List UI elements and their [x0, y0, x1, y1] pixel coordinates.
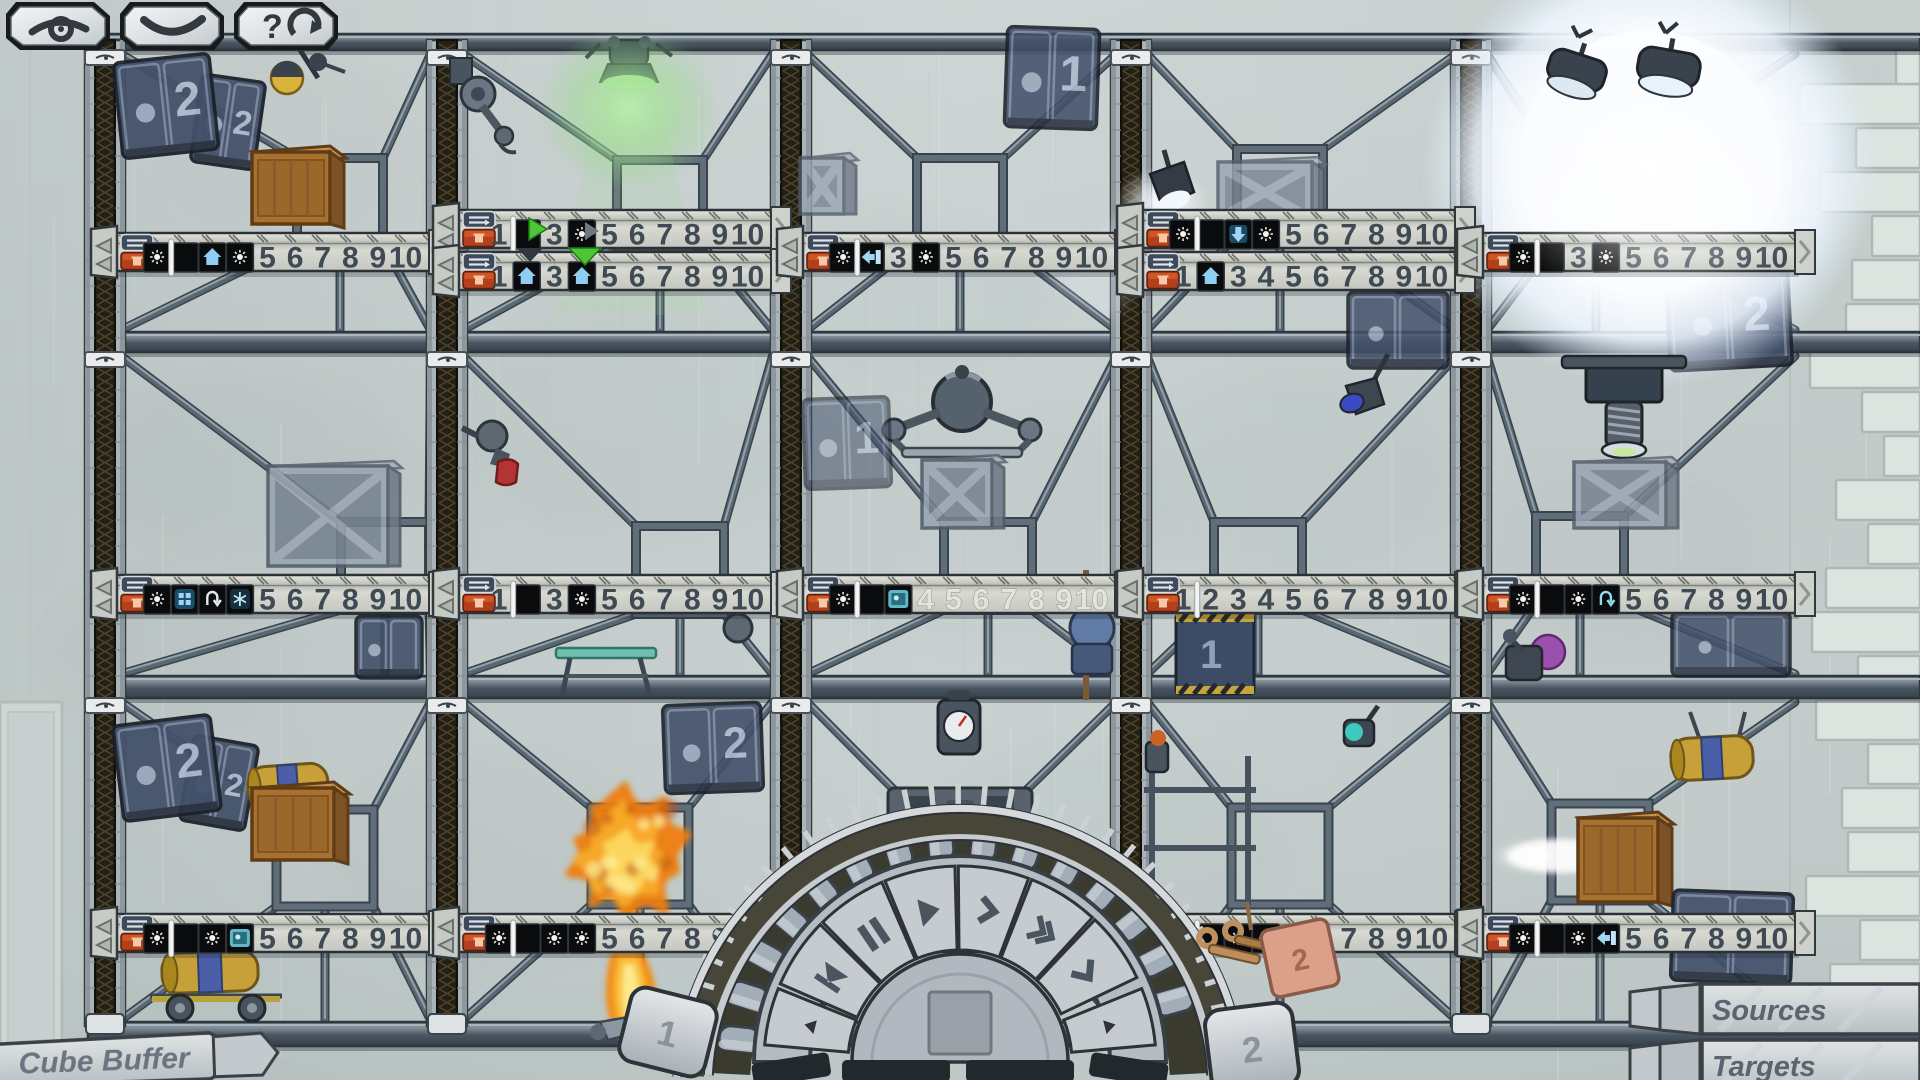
svg-text:7: 7 — [656, 261, 673, 294]
svg-text:6: 6 — [629, 923, 646, 956]
svg-text:2: 2 — [1202, 584, 1219, 617]
svg-text:4: 4 — [918, 584, 935, 617]
svg-text:?: ? — [262, 8, 283, 46]
svg-text:5: 5 — [259, 242, 276, 275]
svg-text:7: 7 — [314, 584, 331, 617]
svg-text:Cube Buffer: Cube Buffer — [18, 1042, 192, 1080]
svg-text:9: 9 — [1736, 923, 1753, 956]
svg-text:9: 9 — [370, 923, 387, 956]
svg-text:3: 3 — [890, 242, 907, 275]
svg-text:9: 9 — [1056, 584, 1073, 617]
svg-text:10: 10 — [1075, 584, 1108, 617]
svg-text:8: 8 — [1708, 923, 1725, 956]
svg-text:7: 7 — [1000, 242, 1017, 275]
svg-text:3: 3 — [1230, 261, 1247, 294]
svg-text:5: 5 — [945, 584, 962, 617]
svg-text:7: 7 — [1340, 261, 1357, 294]
svg-text:9: 9 — [1396, 584, 1413, 617]
svg-text:7: 7 — [656, 923, 673, 956]
svg-text:6: 6 — [287, 584, 304, 617]
svg-text:9: 9 — [712, 219, 729, 252]
svg-text:1: 1 — [491, 219, 508, 252]
svg-text:10: 10 — [1755, 923, 1788, 956]
svg-text:6: 6 — [1653, 923, 1670, 956]
svg-text:5: 5 — [1625, 584, 1642, 617]
svg-text:7: 7 — [1340, 584, 1357, 617]
svg-text:5: 5 — [259, 584, 276, 617]
svg-text:4: 4 — [1258, 261, 1275, 294]
svg-text:6: 6 — [629, 584, 646, 617]
svg-text:10: 10 — [389, 923, 422, 956]
svg-text:5: 5 — [945, 242, 962, 275]
svg-text:6: 6 — [629, 219, 646, 252]
svg-text:10: 10 — [1415, 584, 1448, 617]
svg-text:10: 10 — [1755, 584, 1788, 617]
svg-text:10: 10 — [1415, 923, 1448, 956]
svg-text:5: 5 — [1625, 923, 1642, 956]
svg-text:5: 5 — [259, 923, 276, 956]
svg-text:9: 9 — [1396, 923, 1413, 956]
svg-text:3: 3 — [546, 219, 563, 252]
svg-text:8: 8 — [684, 261, 701, 294]
svg-text:8: 8 — [342, 584, 359, 617]
svg-text:9: 9 — [1056, 242, 1073, 275]
svg-text:1: 1 — [1175, 584, 1192, 617]
svg-text:1: 1 — [1058, 45, 1088, 102]
svg-text:8: 8 — [684, 219, 701, 252]
svg-text:1: 1 — [491, 261, 508, 294]
svg-text:1: 1 — [491, 584, 508, 617]
svg-text:8: 8 — [1368, 584, 1385, 617]
svg-text:8: 8 — [684, 923, 701, 956]
svg-text:9: 9 — [370, 584, 387, 617]
svg-text:3: 3 — [546, 261, 563, 294]
svg-text:6: 6 — [287, 242, 304, 275]
svg-text:6: 6 — [1313, 584, 1330, 617]
svg-text:10: 10 — [1075, 242, 1108, 275]
svg-text:9: 9 — [712, 584, 729, 617]
svg-text:9: 9 — [1736, 584, 1753, 617]
svg-text:1: 1 — [853, 412, 880, 464]
svg-text:8: 8 — [1028, 584, 1045, 617]
svg-text:6: 6 — [973, 584, 990, 617]
svg-text:7: 7 — [1680, 923, 1697, 956]
svg-text:5: 5 — [601, 923, 618, 956]
svg-text:5: 5 — [1285, 584, 1302, 617]
svg-text:7: 7 — [1680, 584, 1697, 617]
svg-text:7: 7 — [656, 219, 673, 252]
svg-text:9: 9 — [1396, 219, 1413, 252]
svg-text:7: 7 — [1340, 219, 1357, 252]
svg-text:10: 10 — [1415, 219, 1448, 252]
svg-text:6: 6 — [287, 923, 304, 956]
svg-text:5: 5 — [1285, 261, 1302, 294]
svg-text:8: 8 — [1028, 242, 1045, 275]
svg-text:8: 8 — [342, 923, 359, 956]
svg-text:9: 9 — [712, 261, 729, 294]
svg-text:6: 6 — [1313, 219, 1330, 252]
svg-text:8: 8 — [1708, 584, 1725, 617]
svg-text:10: 10 — [1415, 261, 1448, 294]
svg-text:4: 4 — [1258, 584, 1275, 617]
svg-text:6: 6 — [629, 261, 646, 294]
svg-text:10: 10 — [731, 261, 764, 294]
svg-text:7: 7 — [314, 923, 331, 956]
svg-text:8: 8 — [1368, 219, 1385, 252]
svg-text:7: 7 — [314, 242, 331, 275]
svg-text:8: 8 — [684, 584, 701, 617]
svg-text:7: 7 — [1000, 584, 1017, 617]
svg-text:6: 6 — [1653, 584, 1670, 617]
svg-text:8: 8 — [1368, 261, 1385, 294]
svg-text:2: 2 — [722, 718, 748, 768]
svg-text:6: 6 — [973, 242, 990, 275]
svg-text:2: 2 — [171, 72, 203, 128]
svg-text:1: 1 — [1200, 633, 1222, 677]
svg-text:5: 5 — [1285, 219, 1302, 252]
svg-text:10: 10 — [731, 584, 764, 617]
svg-text:9: 9 — [1396, 261, 1413, 294]
svg-text:8: 8 — [342, 242, 359, 275]
svg-text:3: 3 — [546, 584, 563, 617]
svg-text:5: 5 — [601, 261, 618, 294]
svg-text:10: 10 — [389, 242, 422, 275]
svg-text:6: 6 — [1313, 261, 1330, 294]
svg-text:8: 8 — [1368, 923, 1385, 956]
svg-text:5: 5 — [601, 219, 618, 252]
svg-text:7: 7 — [1340, 923, 1357, 956]
svg-text:7: 7 — [656, 584, 673, 617]
svg-text:Targets: Targets — [1712, 1051, 1816, 1080]
svg-text:9: 9 — [370, 242, 387, 275]
svg-text:10: 10 — [389, 584, 422, 617]
svg-text:5: 5 — [601, 584, 618, 617]
svg-text:3: 3 — [1230, 584, 1247, 617]
svg-text:1: 1 — [1175, 261, 1192, 294]
svg-text:10: 10 — [731, 219, 764, 252]
svg-text:Sources: Sources — [1712, 995, 1826, 1027]
